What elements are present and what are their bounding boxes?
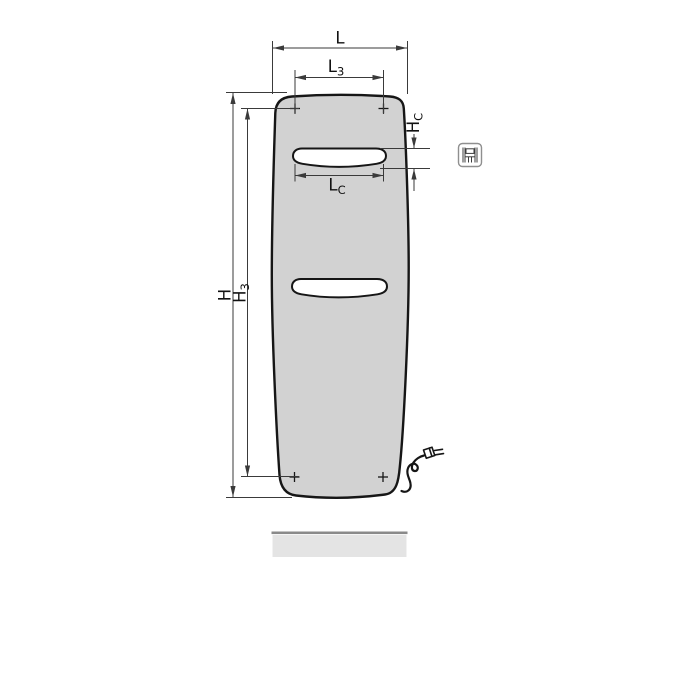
power-cable (402, 447, 444, 492)
dim-label-fixing-height: H3 (231, 283, 253, 303)
cable-line (402, 456, 425, 492)
technical-drawing-canvas: L L3 H H3 (0, 0, 700, 700)
baseboard-body (273, 535, 407, 557)
dimension-width-overall: L (273, 29, 408, 95)
dim-label-fixing-width: L3 (328, 57, 345, 79)
wall-baseboard (272, 532, 408, 558)
dim-label-width-overall: L (335, 29, 345, 48)
baseboard-top-edge (272, 532, 408, 535)
plug-pin-bottom (436, 454, 444, 455)
bottom-handle-slot (292, 279, 387, 297)
top-handle-slot (293, 149, 386, 167)
plug-pin-top (435, 449, 443, 450)
radiator-panel (272, 95, 409, 498)
radiator-dimension-diagram: L L3 H H3 (0, 0, 700, 700)
variant-thumbnail-button[interactable] (459, 144, 482, 167)
dim-label-cutout-height: HC (404, 113, 426, 133)
